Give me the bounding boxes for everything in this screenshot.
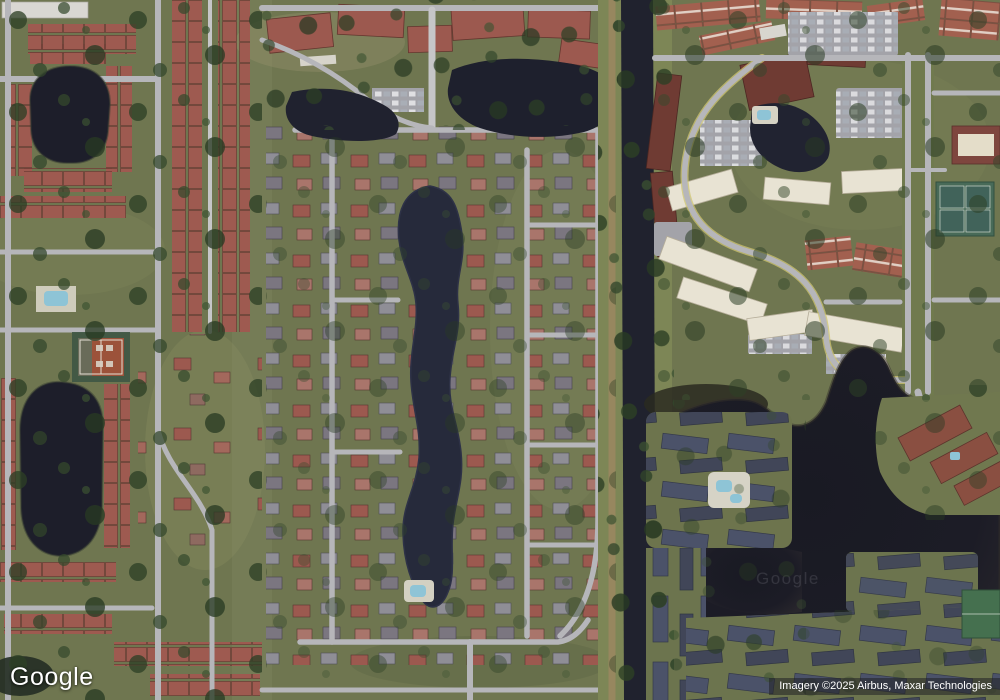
map-canvas[interactable]: Google <box>0 0 1000 700</box>
satellite-imagery: Google <box>0 0 1000 700</box>
imagery-attribution: Imagery ©2025 Airbus, Maxar Technologies <box>769 678 1000 695</box>
apartment-cluster-mid <box>846 552 978 612</box>
google-logo[interactable]: Google <box>10 663 94 692</box>
